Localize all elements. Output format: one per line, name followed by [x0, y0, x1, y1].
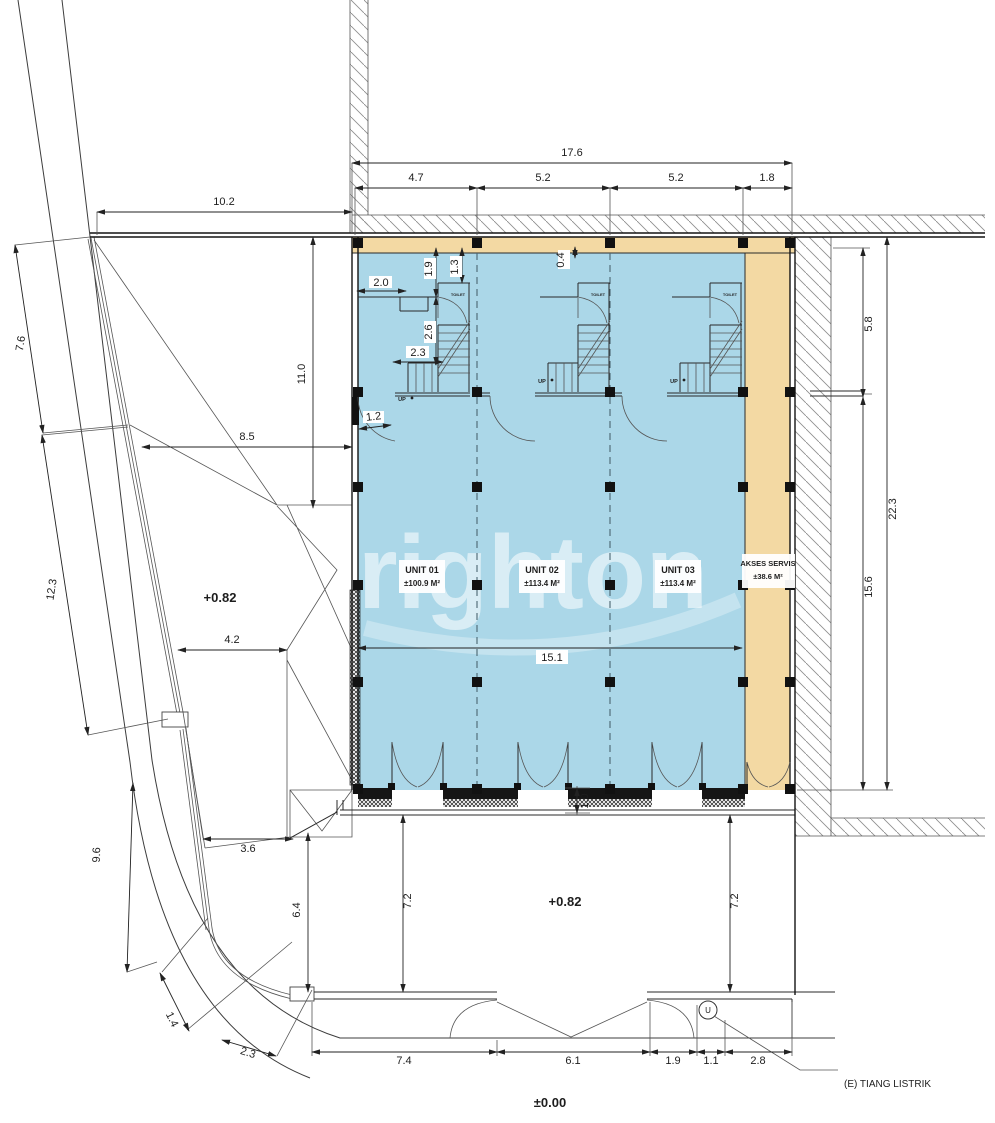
dim-stair-a: 1.9	[423, 261, 435, 276]
site-level-label: +0.82	[204, 590, 237, 605]
dim-corner-depth: 6.4	[291, 902, 303, 917]
dim-right-lower: 15.6	[863, 576, 875, 597]
service-corridor	[745, 253, 790, 790]
dim-bottom-74: 7.4	[396, 1055, 411, 1067]
toilet-label: TOILET	[591, 292, 606, 297]
unit-01-area: ±100.9 M²	[404, 579, 440, 588]
dim-terrace-left-depth: 7.2	[402, 893, 414, 908]
toilet-label: TOILET	[723, 292, 738, 297]
dim-overall-width: 17.6	[561, 147, 582, 159]
dim-front-gap: 1.0	[579, 793, 591, 808]
unit-02-name: UNIT 02	[525, 565, 559, 575]
dim-bottom-28: 2.8	[750, 1055, 765, 1067]
dim-stair-c: 2.6	[423, 324, 435, 339]
up-label: UP	[670, 379, 678, 385]
street-level-label: ±0.00	[534, 1095, 566, 1110]
dim-right-upper: 5.8	[863, 316, 875, 331]
up-label: UP	[538, 379, 546, 385]
dim-gap: 4.2	[224, 634, 239, 646]
dim-front-setback: 8.5	[239, 431, 254, 443]
dim-bottom-11: 1.1	[703, 1055, 718, 1067]
dim-site-front: 10.2	[213, 196, 234, 208]
dim-side-setback: 11.0	[296, 364, 308, 385]
floor-plan-page: U righton TOILET TOI	[0, 0, 995, 1123]
dim-door: 1.2	[365, 410, 382, 424]
dim-bay-4: 1.8	[759, 172, 774, 184]
dim-corner-short: 3.6	[240, 843, 255, 855]
dim-road-lower: 9.6	[91, 847, 104, 863]
electric-pole-symbol: U	[705, 1006, 711, 1015]
dim-terrace-right-depth: 7.2	[729, 893, 741, 908]
service-area-name: AKSES SERVIS	[740, 559, 795, 568]
service-area-size: ±38.6 M²	[753, 572, 783, 581]
dim-bay-1: 4.7	[408, 172, 423, 184]
unit-03-name: UNIT 03	[661, 565, 695, 575]
unit-01-name: UNIT 01	[405, 565, 439, 575]
dim-bottom-61: 6.1	[565, 1055, 580, 1067]
unit-02-area: ±113.4 M²	[524, 579, 560, 588]
electric-pole-note: (E) TIANG LISTRIK	[844, 1079, 931, 1090]
dim-bottom-19: 1.9	[665, 1055, 680, 1067]
dim-right-overall: 22.3	[887, 498, 899, 519]
dim-stair-d: 2.3	[410, 347, 425, 359]
dim-hall-width: 2.0	[373, 277, 388, 289]
dim-road-upper: 7.6	[14, 335, 28, 352]
unit-03-area: ±113.4 M²	[660, 579, 696, 588]
dim-curb-b: 2.3	[239, 1045, 257, 1061]
up-label: UP	[398, 397, 406, 403]
dim-road-mid: 12.3	[44, 578, 59, 601]
toilet-label: TOILET	[451, 292, 466, 297]
floor-plan-drawing: U righton TOILET TOI	[0, 0, 995, 1123]
dim-curb-a: 1.4	[163, 1010, 180, 1029]
terrace-level-label: +0.82	[549, 894, 582, 909]
dim-bay-3: 5.2	[668, 172, 683, 184]
service-strip-top	[352, 237, 795, 253]
dim-stair-b: 1.3	[449, 259, 461, 274]
dim-bay-2: 5.2	[535, 172, 550, 184]
dim-shop-width: 15.1	[541, 652, 562, 664]
dim-wall: 0.4	[555, 252, 567, 267]
